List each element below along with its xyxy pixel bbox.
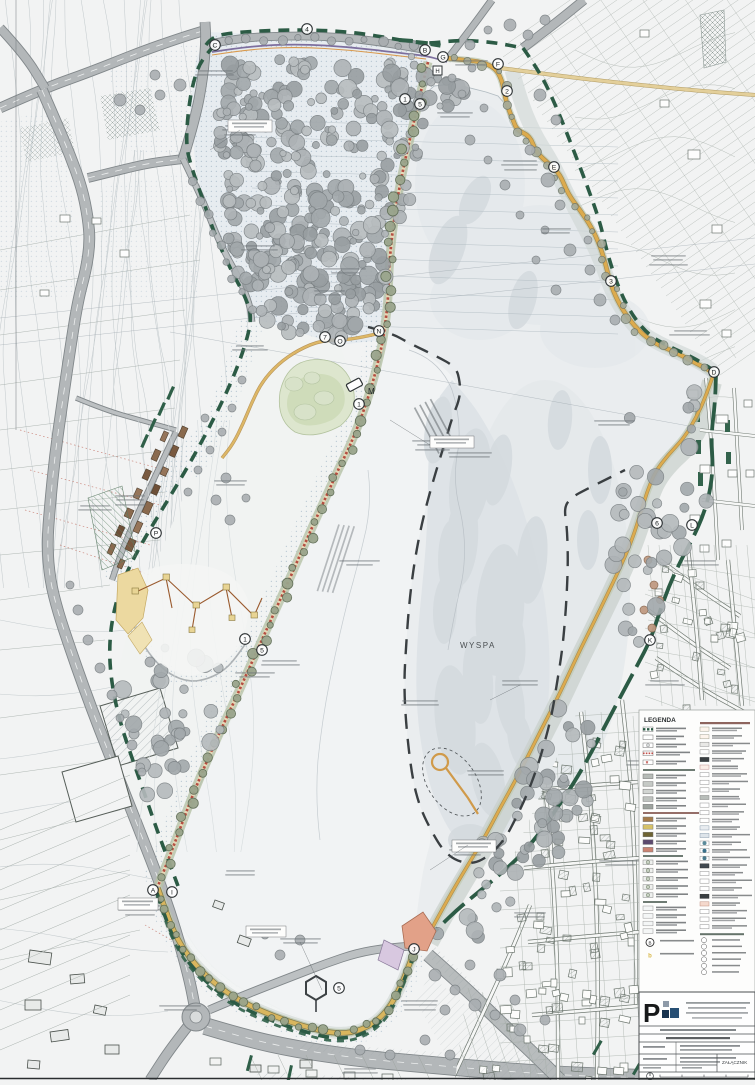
svg-text:5: 5: [260, 647, 264, 654]
svg-text:I: I: [171, 889, 173, 896]
svg-text:L: L: [690, 522, 694, 529]
svg-text:B: B: [648, 940, 651, 945]
svg-text:P: P: [643, 998, 660, 1028]
svg-text:5: 5: [337, 985, 341, 992]
svg-text:1: 1: [403, 96, 407, 103]
svg-text:K: K: [648, 637, 653, 644]
svg-text:J: J: [412, 946, 415, 953]
svg-text:1: 1: [357, 401, 361, 408]
svg-text:b: b: [648, 953, 652, 959]
svg-text:7: 7: [323, 334, 327, 341]
svg-text:O: O: [337, 338, 342, 345]
svg-text:F: F: [496, 61, 500, 68]
svg-text:G: G: [440, 54, 445, 61]
svg-text:2: 2: [505, 88, 509, 95]
svg-text:E: E: [552, 164, 557, 171]
svg-text:N: N: [377, 328, 382, 335]
svg-text:5: 5: [418, 101, 422, 108]
svg-text:D: D: [712, 369, 717, 376]
svg-text:6: 6: [655, 520, 659, 527]
svg-text:4: 4: [305, 26, 309, 33]
svg-text:ZAŁĄCZNIK: ZAŁĄCZNIK: [722, 1060, 748, 1065]
svg-text:WYSPA: WYSPA: [460, 641, 496, 650]
svg-text:P: P: [154, 530, 159, 537]
svg-text:C: C: [213, 42, 218, 49]
svg-text:A: A: [151, 887, 156, 894]
svg-text:H: H: [435, 69, 439, 75]
svg-text:B: B: [423, 47, 428, 54]
svg-text:M: M: [368, 387, 375, 396]
svg-text:3: 3: [609, 278, 613, 285]
svg-text:LEGENDA: LEGENDA: [644, 717, 676, 724]
svg-text:1: 1: [243, 636, 247, 643]
